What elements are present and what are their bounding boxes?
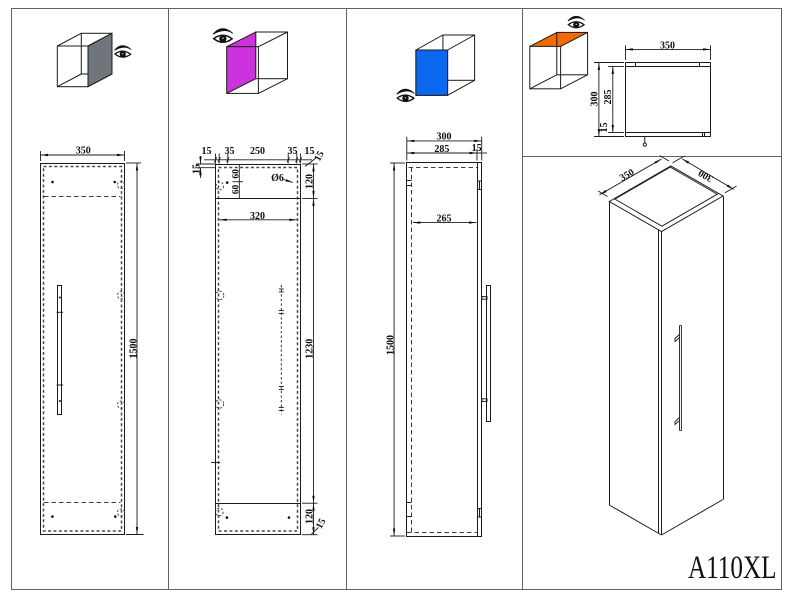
svg-text:285: 285: [434, 144, 449, 155]
svg-text:1500: 1500: [128, 339, 139, 359]
svg-text:300: 300: [590, 92, 601, 107]
svg-text:A110XL: A110XL: [688, 550, 777, 586]
svg-text:350: 350: [618, 167, 636, 184]
svg-text:350: 350: [660, 40, 675, 51]
svg-text:15: 15: [192, 164, 203, 174]
svg-text:265: 265: [437, 213, 452, 224]
svg-text:35: 35: [225, 146, 235, 157]
svg-text:60: 60: [232, 185, 242, 195]
svg-text:35: 35: [288, 146, 298, 157]
svg-text:15: 15: [472, 143, 482, 154]
svg-text:15: 15: [312, 149, 326, 163]
svg-text:350: 350: [76, 146, 91, 157]
svg-text:1500: 1500: [385, 335, 396, 355]
svg-text:15: 15: [202, 146, 212, 157]
svg-text:15: 15: [314, 517, 328, 531]
svg-text:15: 15: [599, 123, 610, 133]
svg-text:320: 320: [250, 211, 265, 222]
svg-text:1230: 1230: [305, 339, 316, 359]
svg-text:250: 250: [250, 146, 265, 157]
svg-text:120: 120: [305, 509, 316, 524]
svg-text:120: 120: [305, 174, 316, 189]
svg-text:Ø6: Ø6: [271, 173, 284, 184]
svg-text:285: 285: [603, 90, 614, 105]
svg-text:300: 300: [437, 132, 452, 143]
svg-text:60: 60: [232, 169, 242, 179]
